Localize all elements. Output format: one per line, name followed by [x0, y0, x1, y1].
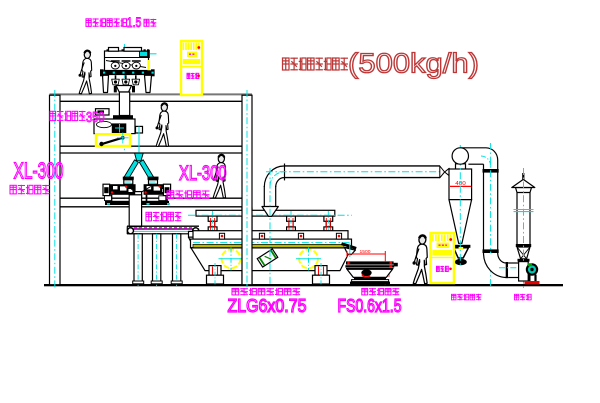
svg-text:1.5: 1.5 [127, 14, 142, 30]
svg-text:XL-300: XL-300 [14, 158, 64, 184]
svg-text:XL-300: XL-300 [179, 161, 227, 185]
svg-text:1500: 1500 [360, 249, 371, 255]
svg-text:350: 350 [86, 110, 105, 126]
svg-text:(500kg/h): (500kg/h) [348, 48, 479, 79]
svg-text:ZLG6x0.75: ZLG6x0.75 [228, 296, 307, 316]
svg-text:FS0.6x1.5: FS0.6x1.5 [338, 296, 402, 316]
